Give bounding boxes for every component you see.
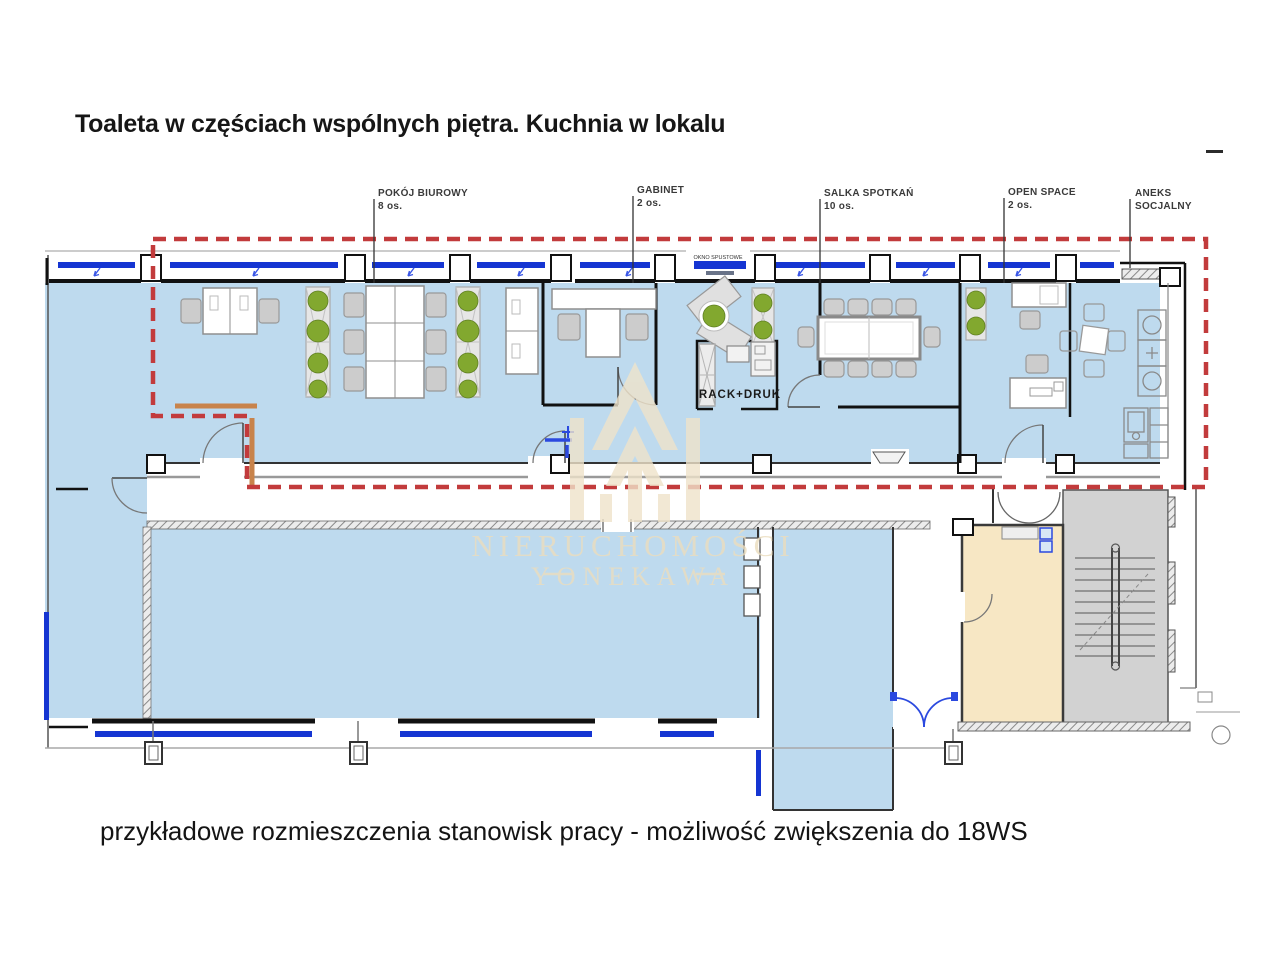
svg-text:OPEN SPACE: OPEN SPACE	[1008, 187, 1076, 198]
chair	[344, 367, 364, 391]
plant-icon	[308, 291, 328, 311]
chair	[426, 367, 446, 391]
plant-icon	[457, 320, 479, 342]
chair	[1026, 355, 1048, 373]
chair	[896, 299, 916, 315]
desk-pod-c	[506, 288, 538, 374]
plant-icon	[307, 320, 329, 342]
planter	[456, 287, 480, 398]
chair	[344, 330, 364, 354]
chair	[848, 299, 868, 315]
chair	[1020, 311, 1040, 329]
svg-text:2 os.: 2 os.	[637, 198, 661, 209]
svg-text:8 os.: 8 os.	[378, 201, 402, 212]
watermark-line2: YONEKAWA	[531, 562, 735, 591]
plant-icon	[754, 321, 772, 339]
plant-icon	[309, 380, 327, 398]
chair	[181, 299, 201, 323]
window-note-text: OKNO SPUSTOWE	[693, 255, 742, 261]
chair	[426, 330, 446, 354]
beige-room-floor	[962, 525, 1063, 728]
svg-text:10 os.: 10 os.	[824, 201, 854, 212]
window-note: OKNO SPUSTOWE	[686, 250, 750, 278]
stair-side-walls	[1168, 497, 1175, 672]
window-bars	[58, 262, 1114, 268]
stairwell-floor	[1063, 490, 1168, 728]
chair	[259, 299, 279, 323]
printer-icon	[727, 346, 749, 362]
plant-icon	[703, 305, 725, 327]
plant-icon	[967, 291, 985, 309]
planter	[306, 287, 330, 398]
plant-icon	[308, 353, 328, 373]
floor-plan-drawing: OKNO SPUSTOWE	[0, 0, 1280, 960]
blue-cabinet	[1040, 528, 1052, 539]
chair	[896, 361, 916, 377]
rack-druk-label: RACK+DRUK	[699, 389, 781, 401]
plant-icon	[458, 291, 478, 311]
chair	[824, 361, 844, 377]
label-salka-spotkan: SALKA SPOTKAŃ 10 os.	[820, 186, 914, 283]
bottom-window-bars	[95, 731, 714, 737]
chair	[872, 299, 892, 315]
plant-icon	[458, 353, 478, 373]
chair	[344, 293, 364, 317]
svg-text:SALKA SPOTKAŃ: SALKA SPOTKAŃ	[824, 186, 914, 199]
blue-double-door	[890, 692, 958, 729]
chair	[848, 361, 868, 377]
chair	[426, 293, 446, 317]
svg-text:2 os.: 2 os.	[1008, 200, 1032, 211]
planter	[966, 288, 986, 340]
plant-icon	[754, 294, 772, 312]
svg-text:POKÓJ BIUROWY: POKÓJ BIUROWY	[378, 186, 468, 199]
label-aneks-socjalny: ANEKS SOCJALNY	[1130, 188, 1192, 268]
planter	[752, 288, 774, 346]
chair	[798, 327, 814, 347]
plant-icon	[459, 380, 477, 398]
watermark-line1: NIERUCHOMOŚCI	[471, 528, 794, 563]
svg-text:ANEKS: ANEKS	[1135, 188, 1172, 199]
hatched-wall	[1122, 269, 1160, 279]
plant-icon	[967, 317, 985, 335]
chair	[872, 361, 892, 377]
chair	[924, 327, 940, 347]
chair	[558, 314, 580, 340]
chair	[626, 314, 648, 340]
floorplan-page: Toaleta w częściach wspólnych piętra. Ku…	[0, 0, 1280, 960]
desk-pod-b	[344, 286, 446, 398]
stair-door-arc	[998, 492, 1060, 523]
svg-text:GABINET: GABINET	[637, 185, 684, 196]
wc-fixture	[1212, 726, 1230, 744]
svg-text:SOCJALNY: SOCJALNY	[1135, 201, 1192, 212]
chair	[824, 299, 844, 315]
